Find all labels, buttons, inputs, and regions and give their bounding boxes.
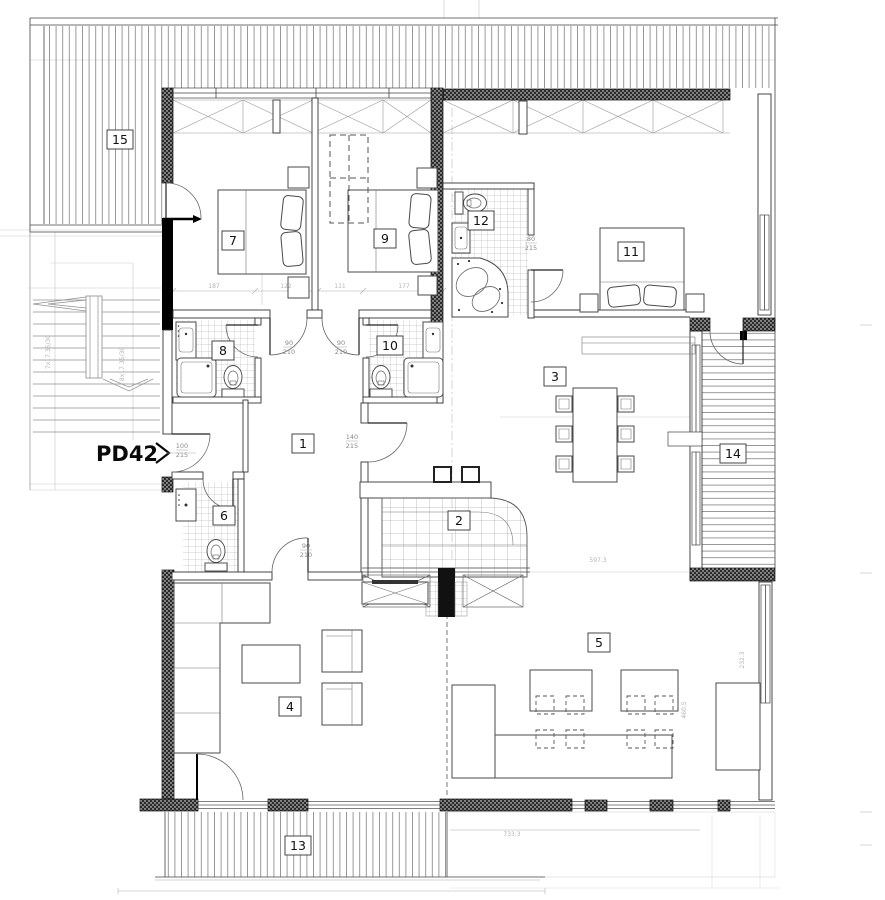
room-label-7: 7: [222, 231, 244, 250]
seg-dim: 177: [398, 283, 410, 290]
svg-text:13: 13: [290, 838, 306, 853]
door-dim: 90 210: [300, 542, 312, 559]
nightstand: [288, 167, 309, 188]
room-5-furniture: [452, 670, 760, 778]
svg-text:140: 140: [346, 433, 358, 441]
svg-text:1: 1: [299, 436, 307, 451]
room-label-5: 5: [588, 633, 610, 652]
floor-plan-drawing: 7x17.35/30 8x17.35/30 15 7 9 8 10 12 11 …: [0, 0, 885, 900]
svg-text:80: 80: [527, 235, 535, 243]
svg-text:2: 2: [455, 513, 463, 528]
shower-tray: [404, 358, 443, 397]
seg-dim: 460.5: [681, 701, 688, 718]
svg-text:7: 7: [229, 233, 237, 248]
room-label-3: 3: [544, 367, 566, 386]
svg-text:12: 12: [473, 213, 489, 228]
window-sill-shelf: [668, 432, 702, 446]
floor-plan-page: 7x17.35/30 8x17.35/30 15 7 9 8 10 12 11 …: [0, 0, 885, 900]
balcony-door-room7: [163, 183, 202, 223]
pillow: [281, 231, 304, 267]
room-3-furniture: [556, 388, 634, 482]
bar-stool: [434, 467, 451, 482]
nightstand: [417, 168, 437, 188]
seg-dim: 597.3: [589, 557, 606, 564]
svg-text:3: 3: [551, 369, 559, 384]
svg-text:215: 215: [525, 244, 537, 252]
kitchen-counter: [382, 498, 527, 577]
bar-stool: [462, 467, 479, 482]
svg-text:100: 100: [176, 442, 188, 450]
door-dim: 80 215: [525, 235, 537, 252]
stair-rail: [86, 296, 102, 378]
svg-text:9: 9: [381, 231, 389, 246]
svg-text:215: 215: [346, 442, 358, 450]
svg-text:210: 210: [283, 348, 295, 356]
post: [273, 100, 280, 133]
total-dim: 733.3: [503, 831, 520, 838]
room-4-furniture: [174, 580, 428, 753]
door-bath12: [531, 270, 563, 302]
door-dim: 90 210: [283, 339, 295, 356]
nightstand: [418, 276, 437, 295]
nightstand: [580, 294, 598, 312]
bench: [716, 683, 760, 770]
room-label-11: 11: [618, 242, 644, 261]
svg-text:210: 210: [335, 348, 347, 356]
stair-arrow-down: [103, 379, 153, 391]
stair-dim-a: 7x17.35/30: [45, 335, 52, 369]
pillow: [280, 195, 303, 231]
toilet-icon: [205, 540, 227, 572]
roof-truss-row: [173, 100, 730, 134]
solid-wall: [162, 218, 173, 330]
svg-text:215: 215: [176, 451, 188, 459]
pillow: [408, 229, 431, 265]
tv: [372, 580, 418, 584]
toilet-icon: [222, 366, 244, 398]
room-label-4: 4: [279, 697, 301, 716]
room-label-6: 6: [213, 506, 235, 525]
door-hall-room3: [368, 423, 407, 462]
balcony-13-area: [155, 812, 545, 877]
pillow: [607, 284, 641, 307]
room-11-window-wall: [534, 310, 690, 317]
svg-text:90: 90: [285, 339, 293, 347]
balcony-door-living: [197, 754, 243, 800]
seg-dim: 122: [280, 283, 292, 290]
plan-code-label: PD42: [96, 442, 158, 466]
door-dim: 90 210: [335, 339, 347, 356]
toilet-icon: [370, 366, 392, 398]
chimney: [438, 568, 455, 617]
room-label-2: 2: [448, 511, 470, 530]
seg-dim: 187: [208, 283, 220, 290]
svg-text:90: 90: [302, 542, 310, 550]
svg-text:6: 6: [220, 508, 228, 523]
svg-text:14: 14: [725, 446, 741, 461]
seg-dim: 232.3: [739, 651, 746, 668]
room-11-furniture: [580, 228, 704, 312]
svg-text:11: 11: [623, 244, 639, 259]
bar-counter: [360, 482, 491, 498]
seg-dim: 111: [334, 283, 346, 290]
room-label-12: 12: [468, 211, 494, 230]
door-dim: 100 215: [176, 442, 188, 459]
room-label-14: 14: [720, 444, 746, 463]
room-label-8: 8: [212, 341, 234, 360]
svg-text:210: 210: [300, 551, 312, 559]
svg-text:15: 15: [112, 132, 128, 147]
post: [519, 101, 527, 134]
svg-text:5: 5: [595, 635, 603, 650]
room-label-13: 13: [285, 836, 311, 855]
coffee-table: [242, 645, 300, 683]
room-label-10: 10: [377, 336, 403, 355]
room-label-15: 15: [107, 130, 133, 149]
table: [530, 670, 592, 711]
svg-text:10: 10: [382, 338, 398, 353]
table: [621, 670, 678, 711]
room-label-9: 9: [374, 229, 396, 248]
svg-text:90: 90: [337, 339, 345, 347]
door-dim: 140 215: [346, 433, 358, 450]
dining-table: [573, 388, 617, 482]
shower-tray: [177, 358, 216, 397]
stair-arrow-up: [33, 297, 86, 311]
nightstand: [686, 294, 704, 312]
room-label-1: 1: [292, 434, 314, 453]
room-9-furniture: [330, 135, 438, 295]
bench: [452, 685, 495, 778]
pillow: [409, 193, 432, 229]
pillow: [643, 285, 677, 308]
stair-dim-b: 8x17.35/30: [119, 347, 126, 381]
low-cabinet: [582, 337, 695, 354]
svg-text:4: 4: [286, 699, 294, 714]
svg-text:8: 8: [219, 343, 227, 358]
